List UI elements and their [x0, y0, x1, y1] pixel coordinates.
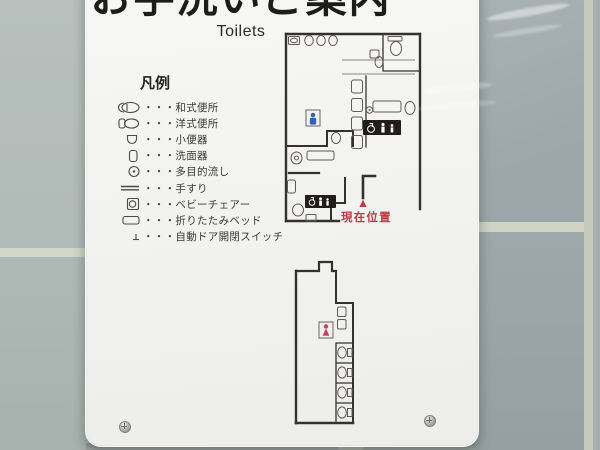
- current-location-arrow: [360, 200, 367, 208]
- urinal-icon: [114, 133, 141, 145]
- grout-line-vertical: [584, 0, 593, 450]
- toilet-guide-sign: お手洗いご案内 Toilets 凡例 ・・・和式便所 ・・・洋式便所: [85, 0, 479, 447]
- chair: [352, 117, 363, 130]
- toilet: [338, 367, 347, 378]
- sink: [338, 307, 347, 317]
- toilet: [405, 102, 415, 115]
- wall-tile-bottom-right: [474, 232, 586, 450]
- toilet: [338, 347, 347, 358]
- grout-line-left: [0, 248, 88, 257]
- baby-icon: [319, 197, 322, 200]
- person-icon: [326, 198, 328, 200]
- screw-bottom-right: [424, 415, 436, 427]
- baby-chair-icon: [114, 197, 141, 211]
- western-toilet-icon: [114, 117, 141, 130]
- urinal: [305, 36, 314, 46]
- folding-bed: [307, 151, 334, 160]
- current-location-marker: 現在位置: [341, 200, 392, 225]
- auto-door-switch-icon: [114, 232, 141, 242]
- toilet: [338, 407, 347, 418]
- handrail-icon: [114, 183, 141, 193]
- accessible-toilet-sign: [305, 195, 336, 208]
- toilet-tank: [348, 349, 353, 357]
- toilet: [291, 152, 302, 164]
- grout-line-right: [474, 222, 586, 232]
- person-icon: [391, 124, 394, 127]
- toilet-tank: [388, 37, 402, 42]
- toilet: [293, 204, 304, 216]
- washbasin-icon: [114, 149, 141, 163]
- wall-tile-top-left: [0, 0, 88, 248]
- plan-walls: [286, 34, 420, 423]
- washbasin: [288, 180, 296, 193]
- baby-icon: [381, 123, 384, 126]
- wall-tile-bottom-left: [0, 257, 88, 450]
- urinal: [375, 57, 383, 68]
- mens-room-icon: [306, 110, 320, 126]
- womens-room-icon: [319, 322, 333, 338]
- chair: [352, 80, 363, 93]
- toilet-tank: [348, 369, 353, 377]
- chair: [352, 99, 363, 112]
- folding-bed-icon: [114, 214, 141, 226]
- urinal: [329, 36, 338, 46]
- floor-plan: 現在位置: [279, 31, 429, 436]
- squat-toilet-icon: [114, 101, 141, 114]
- toilet-tank: [348, 409, 353, 417]
- sink: [338, 320, 347, 330]
- toilet: [391, 42, 402, 56]
- current-location-label: 現在位置: [341, 210, 392, 224]
- toilet: [338, 387, 347, 398]
- plan-fixtures: [288, 36, 416, 419]
- toilet-tank: [348, 389, 353, 397]
- toilet: [332, 133, 341, 144]
- urinal: [317, 36, 326, 46]
- multipurpose-sink-icon: [114, 165, 141, 178]
- accessible-toilet-sign: [363, 120, 401, 135]
- sign-title-japanese: お手洗いご案内: [86, 0, 396, 19]
- screw-bottom-left: [119, 421, 131, 433]
- photo-of-toilet-guide-sign: お手洗いご案内 Toilets 凡例 ・・・和式便所 ・・・洋式便所: [0, 0, 600, 450]
- wall-tile-edge: [593, 0, 600, 450]
- folding-bed: [373, 101, 401, 112]
